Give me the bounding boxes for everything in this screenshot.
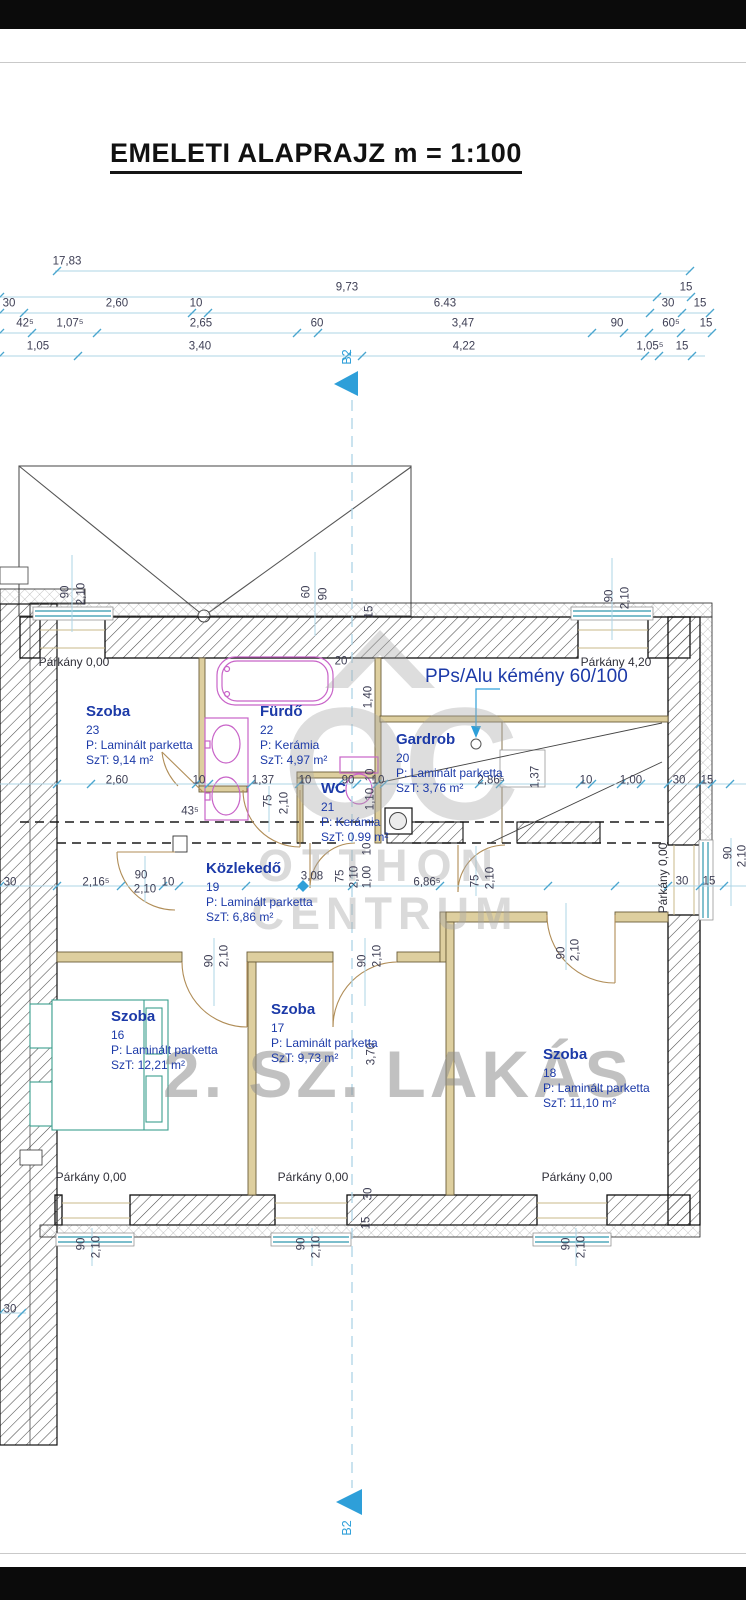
dim-label: 17,83 bbox=[53, 256, 82, 268]
room-detail: SzT: 12,21 m² bbox=[111, 1058, 218, 1073]
dim-label: 1,05⁵ bbox=[636, 341, 663, 353]
dim-label: 30 bbox=[673, 775, 686, 787]
room-detail: P: Kerámia bbox=[260, 738, 327, 753]
room-detail: SzT: 6,86 m² bbox=[206, 910, 313, 925]
room-detail: 22 bbox=[260, 723, 327, 738]
room-label-23: Szoba23P: Laminált parkettaSzT: 9,14 m² bbox=[86, 703, 193, 768]
room-detail: SzT: 4,97 m² bbox=[260, 753, 327, 768]
dim-label: 1,07⁵ bbox=[56, 318, 83, 330]
dim-label: 2,10 bbox=[91, 1236, 103, 1258]
room-detail: P: Laminált parketta bbox=[396, 766, 503, 781]
room-name: Szoba bbox=[111, 1008, 218, 1025]
dim-label: 90 bbox=[723, 847, 735, 860]
section-marker-label: B2 bbox=[341, 1520, 354, 1535]
dim-label: 1,40 bbox=[363, 686, 375, 708]
dim-label: 15 bbox=[361, 1217, 373, 1230]
dim-label: 15 bbox=[703, 876, 716, 888]
room-name: Szoba bbox=[86, 703, 193, 720]
dim-label: 2,10 bbox=[620, 587, 632, 609]
dim-label: 10 bbox=[580, 775, 593, 787]
dim-label: 30 bbox=[4, 1304, 17, 1316]
dim-label: Párkány 0,00 bbox=[657, 843, 669, 914]
dim-label: 1,05 bbox=[27, 341, 49, 353]
dim-label: 15 bbox=[680, 282, 693, 294]
dim-label: Párkány 0,00 bbox=[39, 656, 110, 668]
dim-label: 2,65 bbox=[190, 318, 212, 330]
dim-label: 90 bbox=[604, 590, 616, 603]
room-label-16: Szoba16P: Laminált parkettaSzT: 12,21 m² bbox=[111, 1008, 218, 1073]
dim-label: 90 bbox=[561, 1238, 573, 1251]
bottom-divider bbox=[0, 1553, 746, 1554]
dim-label: 2,10 bbox=[311, 1236, 323, 1258]
room-detail: 19 bbox=[206, 880, 313, 895]
dim-label: 90 bbox=[318, 588, 330, 601]
room-detail: 23 bbox=[86, 723, 193, 738]
dim-label: 90 bbox=[76, 1238, 88, 1251]
dim-label: 2,10 bbox=[219, 945, 231, 967]
dim-label: 2,10 bbox=[570, 939, 582, 961]
room-name: WC bbox=[321, 780, 388, 797]
dim-label: 9,73 bbox=[336, 282, 358, 294]
dim-label: 20 bbox=[335, 656, 348, 668]
room-name: Szoba bbox=[271, 1001, 378, 1018]
room-label-22: Fürdő22P: KerámiaSzT: 4,97 m² bbox=[260, 703, 327, 768]
dim-label: 15 bbox=[701, 775, 714, 787]
dim-label: 2,10 bbox=[76, 583, 88, 605]
room-detail: P: Laminált parketta bbox=[86, 738, 193, 753]
room-name: Közlekedő bbox=[206, 860, 313, 877]
room-detail: SzT: 3,76 m² bbox=[396, 781, 503, 796]
room-label-21: WC21P: KerámiaSzT: 0.99 m² bbox=[321, 780, 388, 845]
dim-label: 30 bbox=[3, 298, 16, 310]
dim-label: 1,37 bbox=[252, 775, 274, 787]
dim-label: 6.43 bbox=[434, 298, 456, 310]
dim-label: 1,00 bbox=[620, 775, 642, 787]
room-detail: SzT: 0.99 m² bbox=[321, 830, 388, 845]
room-name: Szoba bbox=[543, 1046, 650, 1063]
dim-label: 2,60 bbox=[106, 298, 128, 310]
dim-label: 15 bbox=[700, 318, 713, 330]
dim-label: 1,00 bbox=[362, 866, 374, 888]
dim-label: 75 bbox=[263, 795, 275, 808]
dim-label: 90 bbox=[611, 318, 624, 330]
room-detail: P: Laminált parketta bbox=[543, 1081, 650, 1096]
floorplan-page: EMELETI ALAPRAJZ m = 1:100 bbox=[0, 0, 746, 1600]
dim-label: 90 bbox=[296, 1238, 308, 1251]
dim-label: 90 bbox=[357, 955, 369, 968]
dim-label: 90 bbox=[556, 947, 568, 960]
dim-label: 10 bbox=[190, 298, 203, 310]
dim-label: 2,10 bbox=[576, 1236, 588, 1258]
dim-label: 75 bbox=[335, 870, 347, 883]
dim-label: 2,16⁵ bbox=[82, 877, 109, 889]
dim-label: 90 bbox=[60, 586, 72, 599]
room-detail: P: Laminált parketta bbox=[271, 1036, 378, 1051]
room-detail: 18 bbox=[543, 1066, 650, 1081]
room-label-17: Szoba17P: Laminált parkettaSzT: 9,73 m² bbox=[271, 1001, 378, 1066]
dim-label: 6,86⁵ bbox=[413, 877, 440, 889]
dim-label: 15 bbox=[676, 341, 689, 353]
room-detail: SzT: 9,73 m² bbox=[271, 1051, 378, 1066]
room-detail: 16 bbox=[111, 1028, 218, 1043]
dim-label: 90 bbox=[204, 955, 216, 968]
room-name: Fürdő bbox=[260, 703, 327, 720]
dim-label: 2,10 bbox=[372, 945, 384, 967]
dim-label: 4,22 bbox=[453, 341, 475, 353]
room-label-19: Közlekedő19P: Laminált parkettaSzT: 6,86… bbox=[206, 860, 313, 925]
dim-label: Párkány 4,20 bbox=[581, 656, 652, 668]
dim-label: 2,10 bbox=[737, 845, 746, 867]
room-name: Gardrob bbox=[396, 731, 503, 748]
dim-label: 75 bbox=[470, 875, 482, 888]
dim-label: 60⁵ bbox=[662, 318, 680, 330]
room-label-20: Gardrob20P: Laminált parkettaSzT: 3,76 m… bbox=[396, 731, 503, 796]
room-detail: P: Laminált parketta bbox=[111, 1043, 218, 1058]
dim-label: Párkány 0,00 bbox=[542, 1171, 613, 1183]
chimney-annotation: PPs/Alu kémény 60/100 bbox=[425, 666, 628, 688]
dim-label: 43⁵ bbox=[181, 806, 199, 818]
room-detail: SzT: 11,10 m² bbox=[543, 1096, 650, 1111]
dim-label: 30 bbox=[676, 876, 689, 888]
dim-label: 30 bbox=[4, 877, 17, 889]
room-detail: 21 bbox=[321, 800, 388, 815]
room-detail: SzT: 9,14 m² bbox=[86, 753, 193, 768]
dim-label: 2,10 bbox=[134, 884, 156, 896]
dim-label: 10 bbox=[193, 775, 206, 787]
bottom-black-bar bbox=[0, 1567, 746, 1600]
dim-label: 2,10 bbox=[485, 867, 497, 889]
room-label-18: Szoba18P: Laminált parkettaSzT: 11,10 m² bbox=[543, 1046, 650, 1111]
dim-label: 10 bbox=[162, 877, 175, 889]
dim-label: 60 bbox=[301, 586, 313, 599]
dim-label: 3,47 bbox=[452, 318, 474, 330]
dim-label: 60 bbox=[311, 318, 324, 330]
section-marker-label: B2 bbox=[341, 349, 354, 364]
room-detail: P: Kerámia bbox=[321, 815, 388, 830]
dim-label: 30 bbox=[363, 1188, 375, 1201]
dim-label: 90 bbox=[135, 870, 148, 882]
dim-label: 2,10 bbox=[349, 866, 361, 888]
room-detail: P: Laminált parketta bbox=[206, 895, 313, 910]
dim-label: 2,60 bbox=[106, 775, 128, 787]
dim-label: 1,37 bbox=[530, 766, 542, 788]
dim-label: 10 bbox=[299, 775, 312, 787]
dim-label: 42⁵ bbox=[16, 318, 34, 330]
dim-label: Párkány 0,00 bbox=[56, 1171, 127, 1183]
room-detail: 20 bbox=[396, 751, 503, 766]
dim-label: Párkány 0,00 bbox=[278, 1171, 349, 1183]
dim-label: 2,10 bbox=[279, 792, 291, 814]
dim-label: 30 bbox=[662, 298, 675, 310]
dim-label: 15 bbox=[694, 298, 707, 310]
room-detail: 17 bbox=[271, 1021, 378, 1036]
dim-label: 15 bbox=[364, 606, 376, 619]
dim-label: 3,40 bbox=[189, 341, 211, 353]
